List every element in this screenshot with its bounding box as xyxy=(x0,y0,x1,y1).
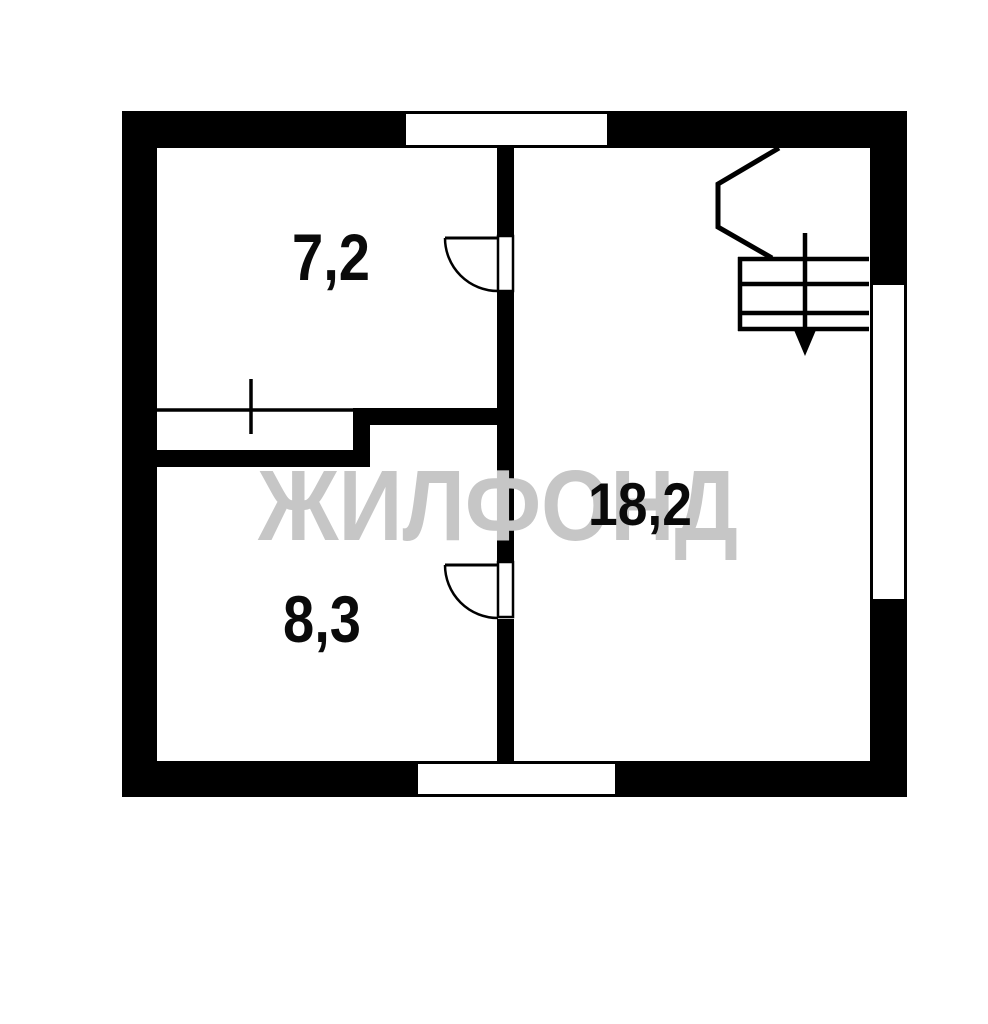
wall-bottom-right-segment xyxy=(618,761,907,797)
partition-step-connector xyxy=(353,425,370,450)
partition-center-lower xyxy=(497,619,514,761)
partition-horizontal-upper xyxy=(353,408,514,425)
wall-top-right-segment xyxy=(608,111,907,148)
door-leaf xyxy=(498,236,513,291)
room-area-label-bottom-left: 8,3 xyxy=(283,582,361,656)
window-right xyxy=(872,284,906,601)
wall-right-top-segment xyxy=(870,111,907,282)
room-area-label-right: 18,2 xyxy=(588,471,692,538)
partition-center-upper xyxy=(497,148,514,236)
wall-bottom-left-segment xyxy=(122,761,415,797)
floor-plan: ЖИЛФОНД 7,2 8,3 18,2 xyxy=(0,0,988,1024)
window-bottom xyxy=(417,763,617,796)
door-leaf xyxy=(498,562,513,617)
wall-left xyxy=(122,111,157,797)
floor-plan-canvas: ЖИЛФОНД 7,2 8,3 18,2 xyxy=(0,0,988,1024)
wall-top-left-segment xyxy=(122,111,404,148)
room-area-label-top-left: 7,2 xyxy=(292,220,370,294)
wall-right-bottom-segment xyxy=(870,602,907,797)
window-top xyxy=(405,113,609,147)
